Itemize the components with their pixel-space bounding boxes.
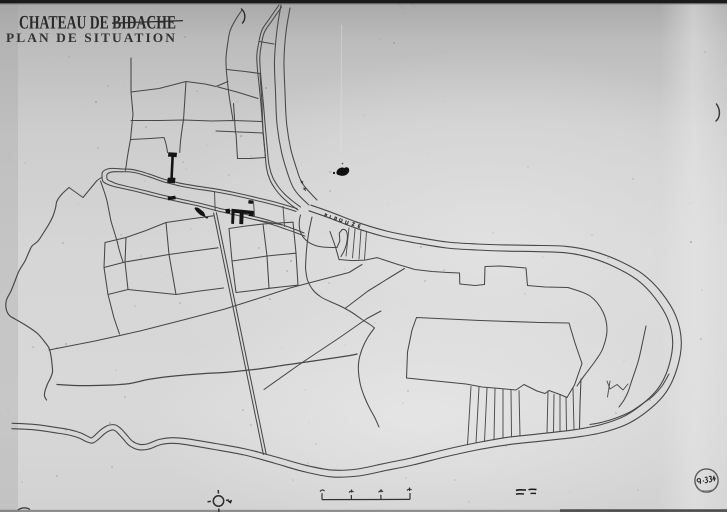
svg-text:PLAN DE SITUATION: PLAN DE SITUATION	[6, 30, 177, 45]
